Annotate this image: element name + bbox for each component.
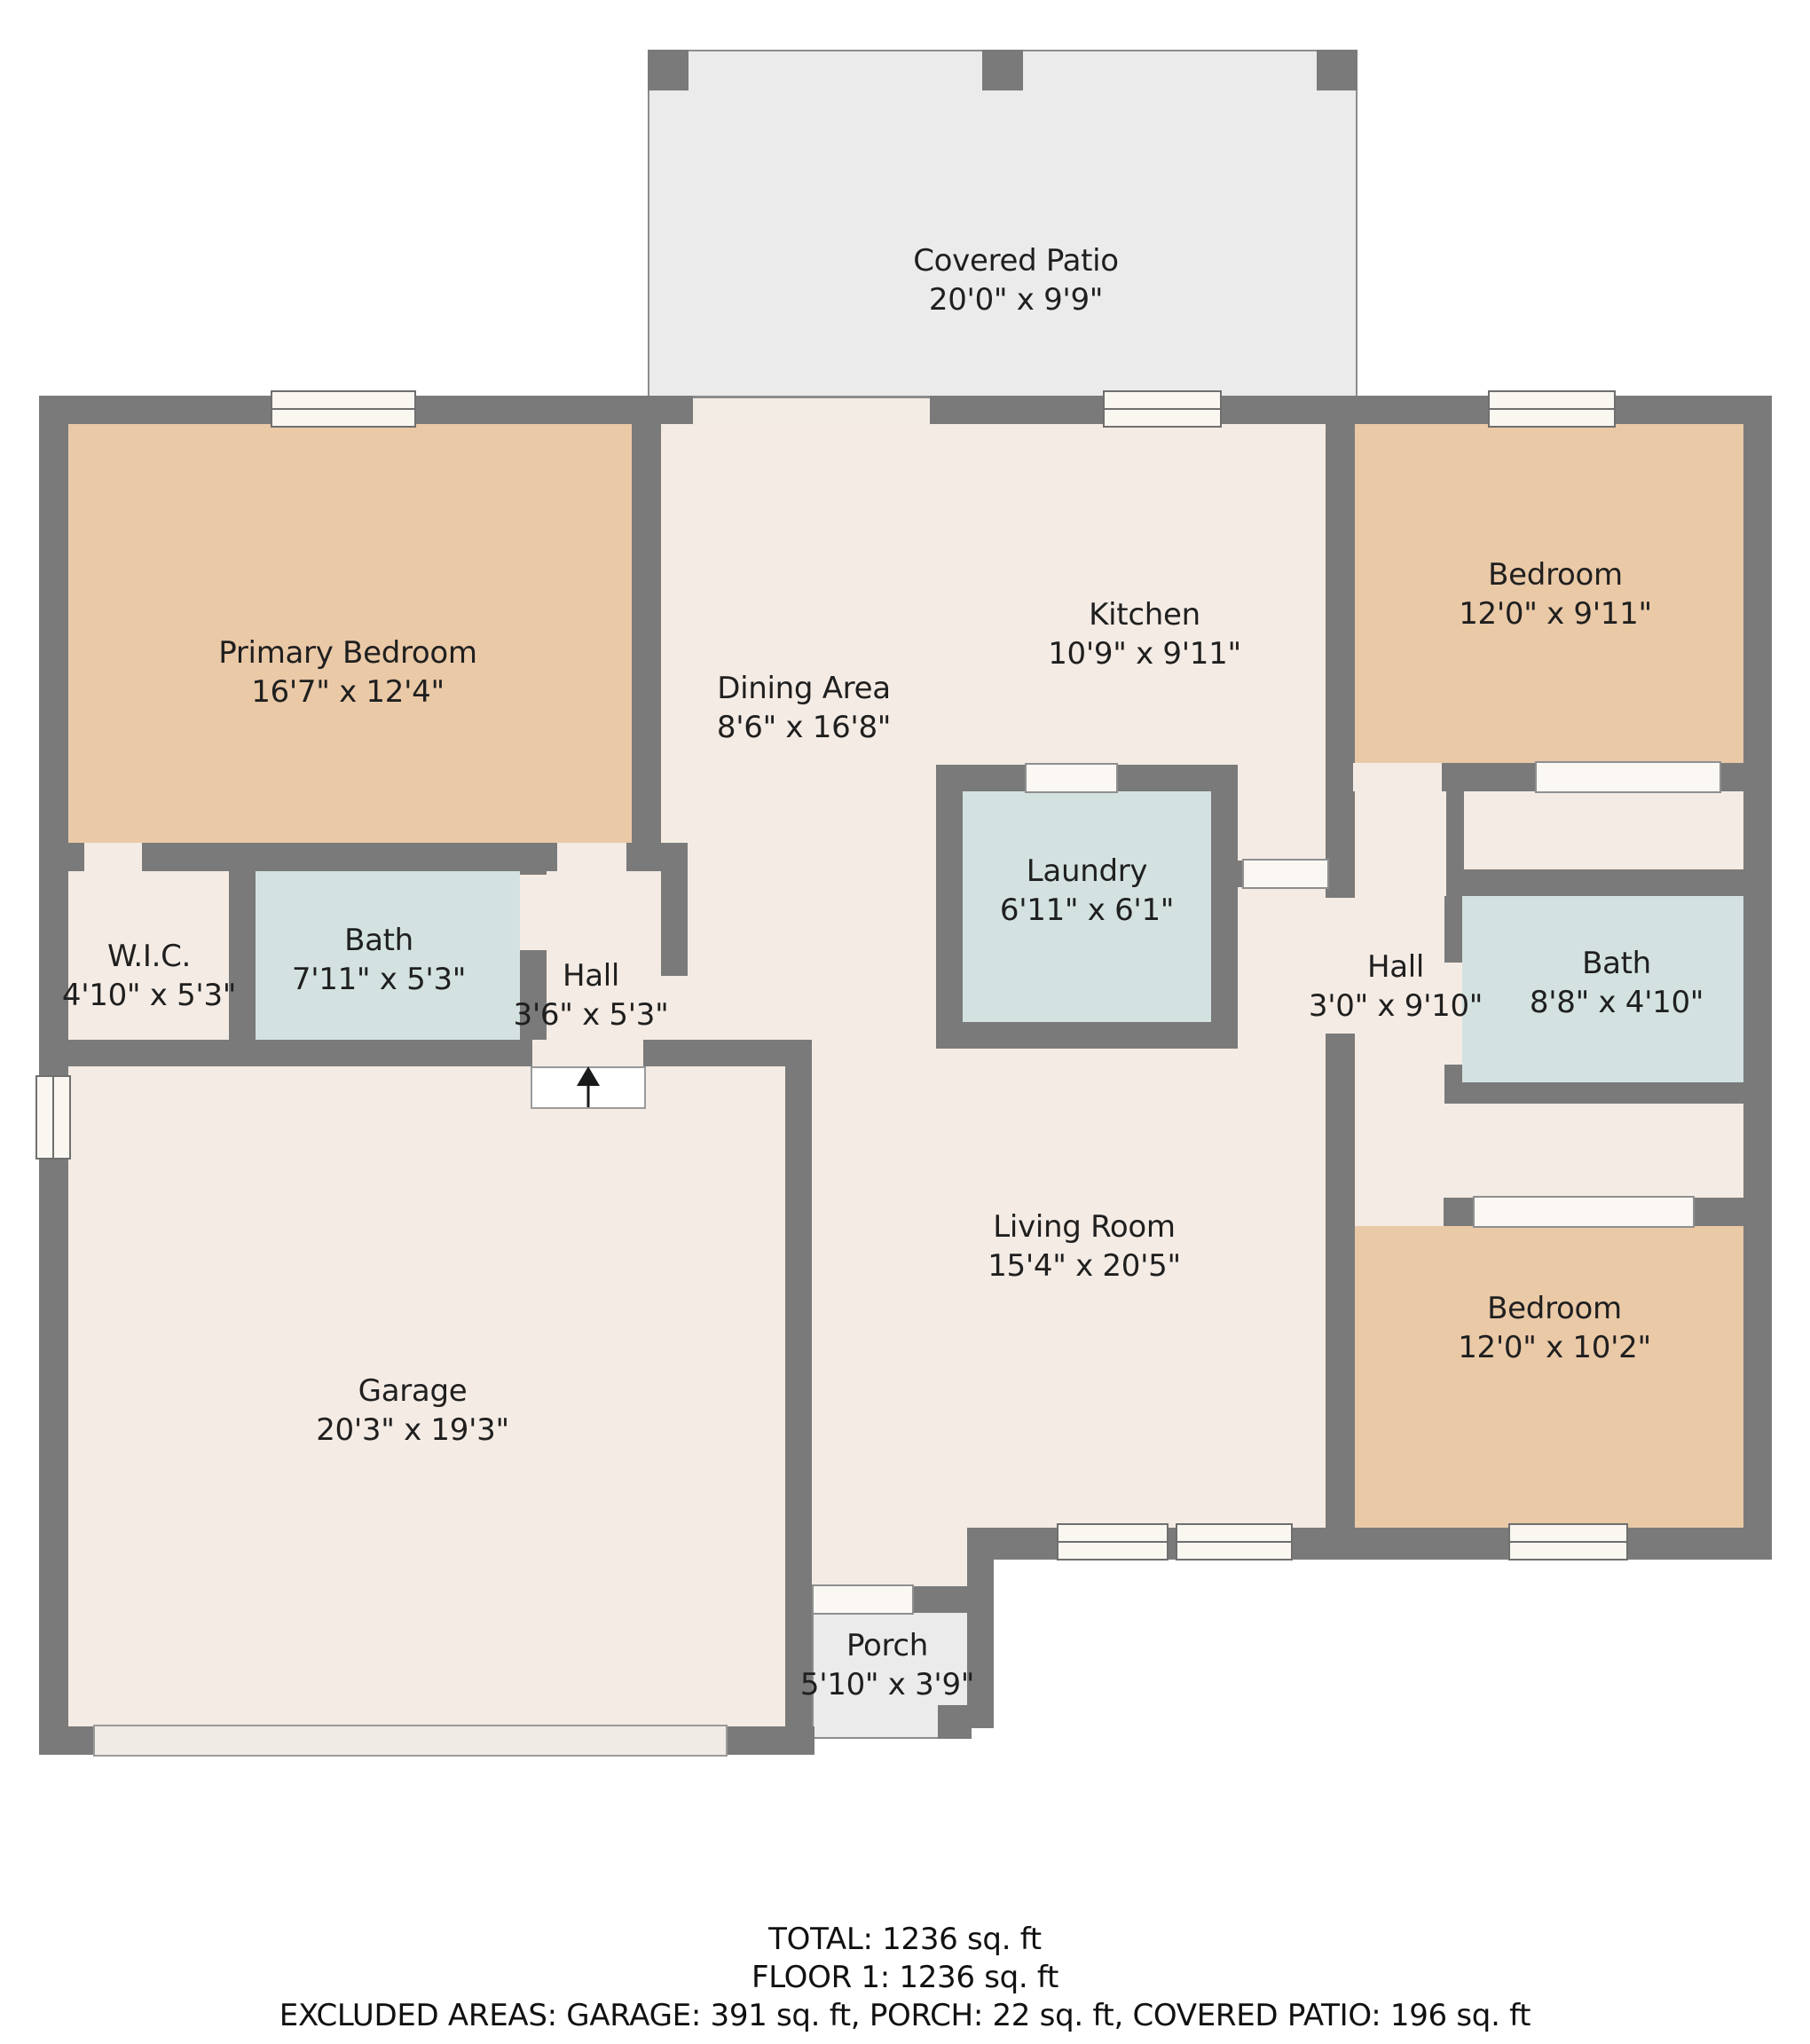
door-gap-bath-left (520, 875, 547, 950)
room-label-living-room: Living Room 15'4" x 20'5" (988, 1207, 1181, 1285)
wall-laundry-right (1211, 765, 1238, 1049)
room-label-covered-patio: Covered Patio 20'0" x 9'9" (913, 241, 1119, 319)
room-name: W.I.C. (62, 937, 236, 976)
room-label-garage: Garage 20'3" x 19'3" (316, 1372, 509, 1450)
room-label-kitchen: Kitchen 10'9" x 9'11" (1048, 595, 1241, 673)
door-gap-bedroom-br (1355, 1198, 1444, 1226)
room-label-bath-right: Bath 8'8" x 4'10" (1530, 944, 1704, 1022)
door-gap-wic (84, 843, 142, 871)
covered-patio-area (648, 50, 1357, 397)
room-label-porch: Porch 5'10" x 3'9" (800, 1626, 974, 1704)
door-gap-primary (557, 843, 626, 871)
wall-porch-top (914, 1586, 994, 1613)
room-dims: 6'11" x 6'1" (1000, 891, 1174, 930)
window-primary-bedroom (271, 390, 416, 428)
room-label-laundry: Laundry 6'11" x 6'1" (1000, 852, 1174, 930)
room-name: Porch (800, 1626, 974, 1665)
room-dims: 20'0" x 9'9" (913, 280, 1119, 319)
room-dims: 8'6" x 16'8" (717, 708, 891, 747)
room-name: Bedroom (1458, 1289, 1651, 1328)
wall-closet1-left (1446, 763, 1464, 869)
room-dims: 5'10" x 3'9" (800, 1665, 974, 1704)
room-name: Dining Area (717, 669, 891, 708)
room-label-primary-bedroom: Primary Bedroom 16'7" x 12'4" (218, 633, 476, 711)
pantry-door (1242, 859, 1329, 889)
wall-laundry-bottom (936, 1022, 1238, 1049)
summary-excluded: EXCLUDED AREAS: GARAGE: 391 sq. ft, PORC… (0, 1997, 1810, 2035)
door-gap-hall-right-top (1353, 763, 1442, 791)
room-label-bath-left: Bath 7'11" x 5'3" (292, 921, 466, 999)
room-name: Bath (292, 921, 466, 960)
room-dims: 10'9" x 9'11" (1048, 634, 1241, 673)
room-dims: 16'7" x 12'4" (218, 672, 476, 711)
summary-floor1: FLOOR 1: 1236 sq. ft (0, 1959, 1810, 1997)
wall-primary-right (632, 396, 661, 871)
wall-living-bedroom-br (1326, 1198, 1355, 1528)
patio-post-center (982, 50, 1023, 90)
summary-total: TOTAL: 1236 sq. ft (0, 1921, 1810, 1959)
window-living-2 (1176, 1523, 1293, 1561)
room-name: Bedroom (1459, 555, 1652, 594)
wall-garage-top (39, 1040, 812, 1066)
wall-hall-bath-right-b (1444, 1065, 1462, 1082)
garage-floor-base (39, 1528, 814, 1755)
window-bedroom-br (1508, 1523, 1628, 1561)
window-bedroom-tr (1488, 390, 1616, 428)
garage-door (93, 1725, 728, 1757)
entry-arrow-icon (562, 1065, 615, 1109)
window-kitchen (1103, 390, 1222, 428)
room-label-hall-left: Hall 3'6" x 5'3" (514, 956, 669, 1034)
wall-hall-right-lower (1326, 1034, 1355, 1198)
area-summary: TOTAL: 1236 sq. ft FLOOR 1: 1236 sq. ft … (0, 1921, 1810, 2035)
wall-bedroom-tr-left (1326, 396, 1355, 791)
room-name: Primary Bedroom (218, 633, 476, 672)
patio-post-left (648, 50, 689, 90)
room-label-hall-right: Hall 3'0" x 9'10" (1309, 947, 1483, 1026)
room-name: Living Room (988, 1207, 1181, 1246)
room-label-wic: W.I.C. 4'10" x 5'3" (62, 937, 236, 1015)
room-name: Garage (316, 1372, 509, 1411)
room-dims: 12'0" x 9'11" (1459, 594, 1652, 633)
wall-outer-right (1743, 396, 1772, 1560)
room-name: Bath (1530, 944, 1704, 983)
room-name: Covered Patio (913, 241, 1119, 280)
laundry-door (1025, 763, 1118, 793)
window-living-1 (1057, 1523, 1169, 1561)
patio-door-opening (693, 396, 930, 424)
room-name: Kitchen (1048, 595, 1241, 634)
room-dims: 8'8" x 4'10" (1530, 983, 1704, 1022)
room-dims: 12'0" x 10'2" (1458, 1328, 1651, 1367)
patio-post-right (1317, 50, 1357, 90)
closet2-slider-door (1473, 1196, 1695, 1228)
wall-laundry-left (936, 765, 963, 1049)
window-garage-left (35, 1075, 71, 1160)
room-label-dining-area: Dining Area 8'6" x 16'8" (717, 669, 891, 747)
room-label-bedroom-top-right: Bedroom 12'0" x 9'11" (1459, 555, 1652, 633)
room-label-bedroom-bottom-right: Bedroom 12'0" x 10'2" (1458, 1289, 1651, 1367)
room-dims: 15'4" x 20'5" (988, 1246, 1181, 1285)
wall-bath-right-top (1446, 869, 1772, 896)
porch-post (938, 1705, 972, 1739)
room-dims: 3'6" x 5'3" (514, 995, 669, 1034)
room-dims: 4'10" x 5'3" (62, 976, 236, 1015)
front-door (812, 1584, 914, 1615)
closet1-slider-door (1535, 761, 1721, 793)
room-dims: 7'11" x 5'3" (292, 960, 466, 999)
room-name: Hall (1309, 947, 1483, 987)
wall-bath-right-bottom (1444, 1082, 1772, 1104)
wall-hall-right-upper (1326, 791, 1355, 898)
room-dims: 3'0" x 9'10" (1309, 987, 1483, 1026)
floor-plan-page: Covered Patio 20'0" x 9'9" Primary Bedro… (0, 0, 1810, 2044)
room-name: Hall (514, 956, 669, 995)
door-gap-entry (532, 1040, 643, 1066)
room-dims: 20'3" x 19'3" (316, 1411, 509, 1450)
bedroom-bottom-right-fill (1355, 1226, 1743, 1528)
room-name: Laundry (1000, 852, 1174, 891)
